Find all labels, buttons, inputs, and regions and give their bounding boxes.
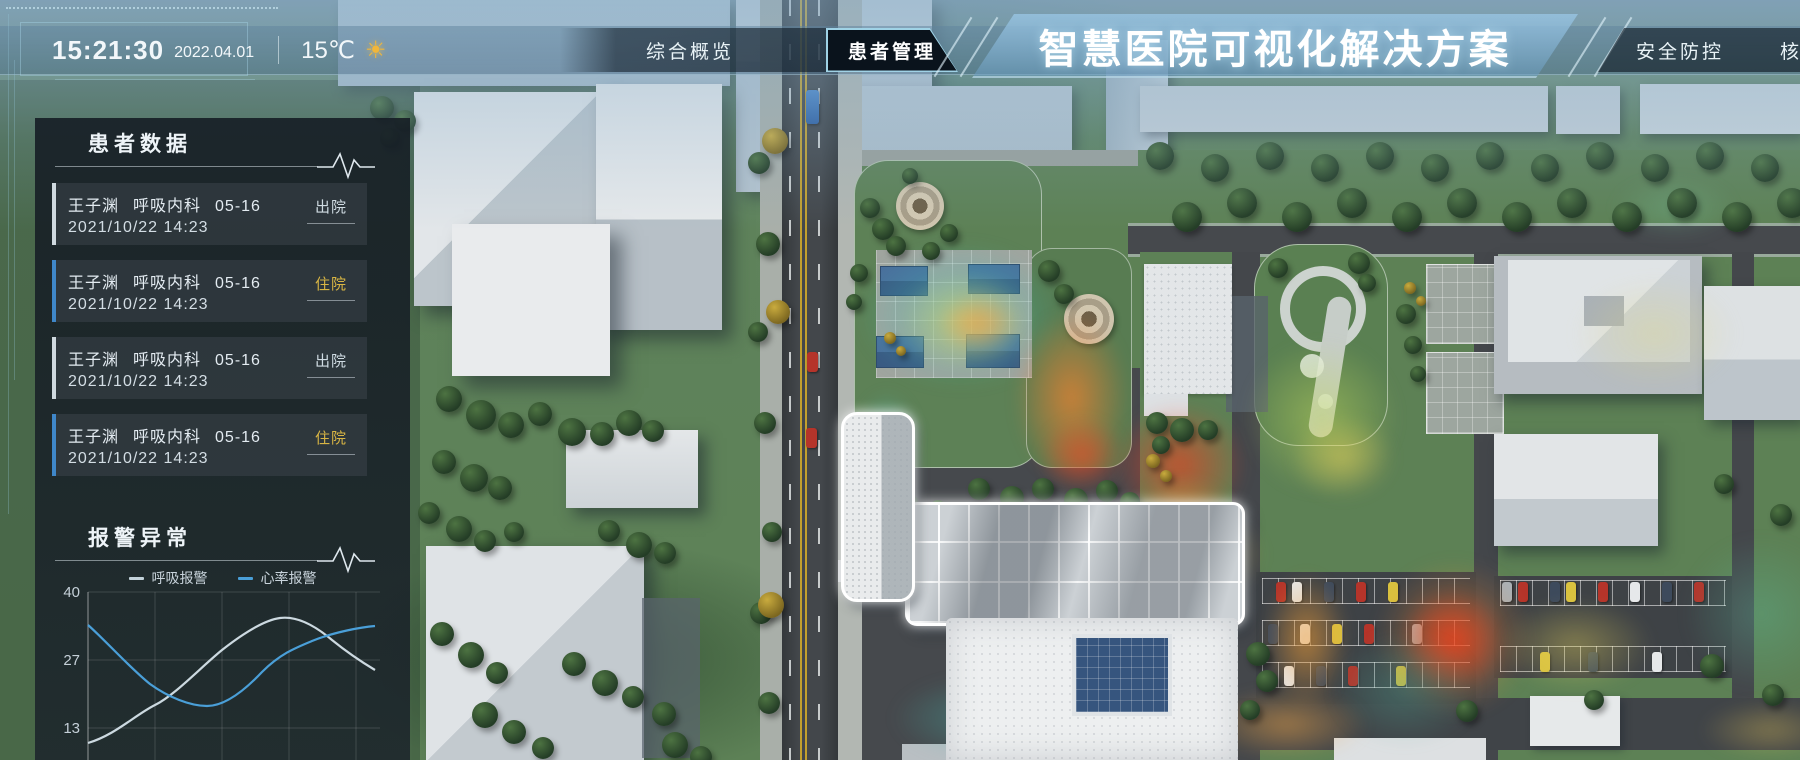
dotted-line-decoration xyxy=(6,7,278,9)
item-accent-bar xyxy=(52,260,56,322)
map-tree xyxy=(474,530,496,552)
map-tree xyxy=(1038,260,1060,282)
map-tree xyxy=(1054,284,1074,304)
map-tree xyxy=(460,464,488,492)
patient-datetime: 2021/10/22 14:23 xyxy=(68,219,209,237)
map-tree xyxy=(432,450,456,474)
map-tree xyxy=(486,662,508,684)
patient-name: 王子渊 xyxy=(68,198,119,215)
clock-time: 15:21:30 xyxy=(52,35,164,66)
patient-list-item[interactable]: 王子渊呼吸内科05-16 2021/10/22 14:23 出院 xyxy=(52,183,367,245)
datetime-panel: 15:21:30 2022.04.01 15℃ ☀ xyxy=(30,26,386,74)
map-heat-blob xyxy=(1498,598,1653,693)
series-heartrate-line xyxy=(88,625,375,706)
patient-department: 呼吸内科 xyxy=(133,429,201,446)
alarm-chart-svg: 40 27 13 xyxy=(50,585,380,760)
section-divider xyxy=(55,560,318,561)
map-heat-blob xyxy=(1290,415,1395,500)
map-tree xyxy=(846,294,862,310)
map-tree xyxy=(472,702,498,728)
left-dashed-decoration xyxy=(14,60,15,380)
map-tree xyxy=(528,402,552,426)
map-tree-yellow xyxy=(1416,296,1426,306)
map-building xyxy=(1530,696,1620,746)
patient-list-item[interactable]: 王子渊呼吸内科05-16 2021/10/22 14:23 住院 xyxy=(52,260,367,322)
map-parked-car xyxy=(1662,582,1672,602)
legend-dash-icon xyxy=(129,577,144,580)
map-parked-car xyxy=(1652,652,1662,672)
map-tree xyxy=(590,422,614,446)
map-tree xyxy=(498,412,524,438)
map-tree xyxy=(748,322,768,342)
map-tree xyxy=(488,476,512,500)
patient-name: 王子渊 xyxy=(68,275,119,292)
map-tree xyxy=(1256,670,1278,692)
map-tree-yellow xyxy=(1404,282,1416,294)
map-tree xyxy=(886,236,906,256)
sidebar-panel: 患者数据 王子渊呼吸内科05-16 2021/10/22 14:23 出院 王子… xyxy=(35,118,410,760)
tab-security[interactable]: 安全防控 xyxy=(1620,28,1740,72)
map-tree xyxy=(1714,474,1734,494)
map-tree xyxy=(598,520,620,542)
map-tree xyxy=(458,642,484,668)
map-tree xyxy=(430,622,454,646)
map-tree xyxy=(1096,480,1118,502)
map-tree xyxy=(758,692,780,714)
selected-hospital-wing[interactable] xyxy=(841,412,915,602)
patient-datetime: 2021/10/22 14:23 xyxy=(68,296,209,314)
map-tree xyxy=(1396,304,1416,324)
map-tree xyxy=(626,532,652,558)
patient-list-item[interactable]: 王子渊呼吸内科05-16 2021/10/22 14:23 住院 xyxy=(52,414,367,476)
clock-date: 2022.04.01 xyxy=(174,44,254,62)
patient-department: 呼吸内科 xyxy=(133,275,201,292)
item-accent-bar xyxy=(52,183,56,245)
map-building xyxy=(566,430,698,508)
ecg-icon xyxy=(317,148,375,182)
legend-dash-icon xyxy=(238,577,253,580)
alarm-line-chart: 40 27 13 xyxy=(50,585,380,760)
map-tree xyxy=(466,400,496,430)
ytick-27: 27 xyxy=(63,652,80,669)
map-heat-blob xyxy=(1572,276,1737,391)
ytick-40: 40 xyxy=(63,585,80,601)
map-tree xyxy=(850,264,868,282)
map-tree xyxy=(418,502,440,524)
map-tree xyxy=(1240,700,1260,720)
left-dashed-decoration xyxy=(8,14,9,514)
patients-section-title: 患者数据 xyxy=(88,128,192,158)
series-breathing-line xyxy=(88,618,375,743)
map-tree xyxy=(562,652,586,676)
patient-bed: 05-16 xyxy=(215,198,261,215)
patient-bed: 05-16 xyxy=(215,275,261,292)
tab-truncated[interactable]: 核 xyxy=(1780,28,1800,72)
map-tree-yellow xyxy=(896,346,906,356)
map-tree xyxy=(532,737,554,759)
title-banner: 智慧医院可视化解决方案 xyxy=(972,14,1578,78)
map-tree xyxy=(1456,700,1478,722)
map-tree xyxy=(1348,252,1370,274)
alarms-section-title: 报警异常 xyxy=(88,522,192,552)
map-parked-car xyxy=(1598,582,1608,602)
sun-icon: ☀ xyxy=(365,36,387,65)
map-car xyxy=(806,428,817,448)
patient-name: 王子渊 xyxy=(68,352,119,369)
map-tree xyxy=(652,702,676,726)
map-tree-yellow xyxy=(758,592,784,618)
map-tree xyxy=(558,418,586,446)
map-tree xyxy=(662,732,688,758)
map-parked-car xyxy=(1356,582,1366,602)
map-tree xyxy=(1246,642,1270,666)
map-tree xyxy=(504,522,524,542)
status-badge[interactable]: 住院 xyxy=(307,427,355,455)
map-tree xyxy=(592,670,618,696)
map-tree xyxy=(1700,654,1724,678)
patient-department: 呼吸内科 xyxy=(133,198,201,215)
map-tree xyxy=(922,242,940,260)
map-tree xyxy=(654,542,676,564)
map-tree xyxy=(1358,274,1376,292)
status-badge[interactable]: 住院 xyxy=(307,273,355,301)
map-tree xyxy=(622,686,644,708)
map-tree xyxy=(502,720,526,744)
map-parked-car xyxy=(1630,582,1640,602)
map-tree xyxy=(1170,418,1194,442)
map-tree xyxy=(1584,690,1604,710)
map-tree xyxy=(436,386,462,412)
map-heat-blob xyxy=(938,294,1018,352)
tab-overview[interactable]: 综合概览 xyxy=(600,28,780,72)
map-building xyxy=(452,224,610,376)
map-tree xyxy=(762,522,782,542)
map-tree xyxy=(1198,420,1218,440)
map-building xyxy=(1144,264,1232,394)
map-tree-yellow xyxy=(884,332,896,344)
map-tree xyxy=(1268,258,1288,278)
item-accent-bar xyxy=(52,414,56,476)
ytick-13: 13 xyxy=(63,720,80,737)
divider xyxy=(278,36,279,64)
map-tree xyxy=(754,412,776,434)
item-accent-bar xyxy=(52,337,56,399)
map-tree xyxy=(1152,436,1170,454)
selected-hospital-hall[interactable] xyxy=(905,502,1245,626)
map-tree xyxy=(1146,412,1168,434)
map-tree xyxy=(616,410,642,436)
map-tree xyxy=(1762,684,1784,706)
status-badge[interactable]: 出院 xyxy=(307,196,355,224)
map-tree xyxy=(642,420,664,442)
temperature-value: 15℃ xyxy=(301,36,355,65)
patient-bed: 05-16 xyxy=(215,352,261,369)
map-tree xyxy=(1404,336,1422,354)
map-tree xyxy=(968,478,990,500)
map-tree xyxy=(1770,504,1792,526)
patient-datetime: 2021/10/22 14:23 xyxy=(68,373,209,391)
chart-gridlines xyxy=(88,592,380,760)
patient-department: 呼吸内科 xyxy=(133,352,201,369)
map-tree xyxy=(1032,478,1054,500)
map-tree-yellow xyxy=(1160,470,1172,482)
patient-bed: 05-16 xyxy=(215,429,261,446)
selected-hospital-atrium[interactable] xyxy=(1072,634,1172,716)
page-title: 智慧医院可视化解决方案 xyxy=(1039,17,1512,75)
patient-name: 王子渊 xyxy=(68,429,119,446)
map-court xyxy=(1426,352,1504,434)
map-tree xyxy=(756,232,780,256)
patient-list-item[interactable]: 王子渊呼吸内科05-16 2021/10/22 14:23 出院 xyxy=(52,337,367,399)
map-court xyxy=(1426,264,1500,344)
map-tree xyxy=(446,516,472,542)
map-car xyxy=(807,352,818,372)
status-badge[interactable]: 出院 xyxy=(307,350,355,378)
map-tree-yellow xyxy=(1146,454,1160,468)
section-divider xyxy=(55,166,318,167)
map-building xyxy=(1494,434,1658,546)
map-tree-yellow xyxy=(766,300,790,324)
map-tree xyxy=(1410,366,1426,382)
patient-datetime: 2021/10/22 14:23 xyxy=(68,450,209,468)
smart-hospital-dashboard: 15:21:30 2022.04.01 15℃ ☀ 综合概览 患者管理 智慧医院… xyxy=(0,0,1800,760)
